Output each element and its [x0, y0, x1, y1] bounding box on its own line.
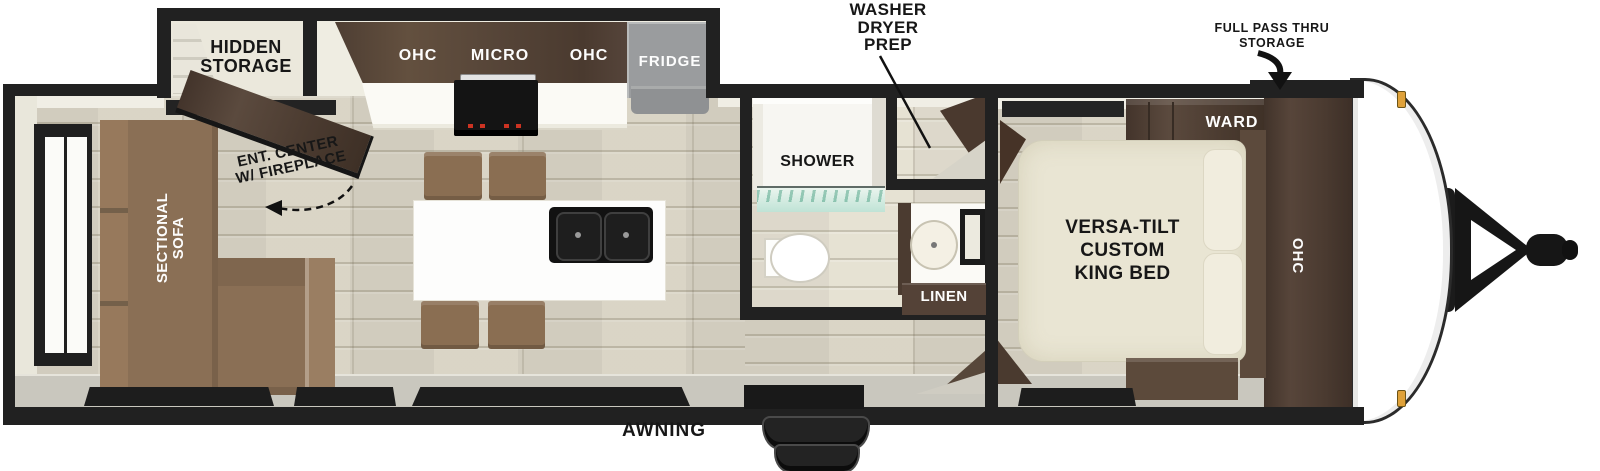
shower-label: SHOWER: [760, 153, 875, 170]
hitch-a-frame-icon: [1438, 178, 1600, 323]
bed-foot-bench: [1126, 358, 1238, 400]
stove-knob: [468, 124, 473, 128]
window-kitchen-bottom: [412, 387, 690, 406]
linen-label: LINEN: [902, 289, 986, 305]
wall-closet-bottom: [886, 179, 998, 190]
wall-top-mid: [706, 84, 1254, 98]
sectional-sofa-seat: [218, 258, 335, 395]
marker-light-bottom: [1397, 390, 1406, 407]
bath-sink-drain: [931, 242, 937, 248]
rear-window-pane: [45, 137, 64, 353]
washer-dryer-leader-line: [862, 50, 942, 155]
marker-light-top: [1397, 91, 1406, 108]
window-sofa-bottom: [294, 387, 396, 406]
wall-bath-left: [740, 87, 752, 319]
shower-glass-texture: [757, 190, 885, 202]
bedroom-ohc-label: OHC: [1289, 227, 1305, 285]
ward-label: WARD: [1192, 114, 1272, 131]
island-chair: [421, 301, 479, 349]
ent-center-swing-arrow-icon: [262, 182, 357, 222]
king-bed-label: VERSA-TILT CUSTOM KING BED: [1040, 216, 1205, 286]
window-rear-bottom: [84, 387, 274, 406]
toilet: [770, 233, 830, 283]
sectional-sofa-label: SECTIONAL SOFA: [155, 178, 191, 298]
bath-mirror: [960, 209, 985, 265]
sink-drain: [575, 232, 581, 238]
vanity-side-panel: [898, 203, 911, 295]
wall-slide-left: [157, 8, 171, 98]
bath-mirror-glass: [965, 215, 980, 259]
wall-top-rear: [3, 84, 165, 96]
rear-window: [34, 124, 92, 366]
bedroom-ohc-cabinet: [1264, 95, 1352, 407]
ohc-right-label: OHC: [561, 47, 617, 64]
rv-floorplan: SECTIONAL SOFA HIDDEN STORAGE ENT. CENTE…: [0, 0, 1600, 471]
fridge-label: FRIDGE: [628, 54, 712, 70]
sofa-back-cushions: [100, 120, 128, 395]
island-chair: [489, 152, 546, 200]
ohc-left-label: OHC: [390, 47, 446, 64]
wall-slide-top: [157, 8, 720, 21]
awning-label: AWNING: [594, 421, 734, 442]
full-pass-thru-label: FULL PASS THRU STORAGE: [1202, 21, 1342, 51]
fridge-door: [631, 86, 709, 114]
sink-bowl: [604, 212, 650, 261]
wall-rear: [3, 84, 15, 425]
shower-glass-door: [757, 186, 885, 212]
stove-knob: [516, 124, 521, 128]
washer-dryer-prep-label: WASHER DRYER PREP: [838, 1, 938, 54]
micro-label: MICRO: [458, 47, 542, 64]
bedroom-top-window-band: [1002, 101, 1124, 117]
sink-bowl: [556, 212, 602, 261]
stove-knob: [480, 124, 485, 128]
entry-door: [744, 385, 864, 409]
pass-thru-arrow-icon: [1250, 50, 1296, 92]
bed-pillow: [1203, 149, 1243, 251]
entry-step: [774, 444, 860, 471]
sink-drain: [623, 232, 629, 238]
island-chair: [424, 152, 482, 200]
hidden-storage-label: HIDDEN STORAGE: [181, 38, 311, 77]
trailer-nose-cap: [1350, 78, 1453, 424]
rear-window-pane: [67, 137, 87, 353]
island-chair: [488, 301, 545, 349]
bedroom-window: [1018, 388, 1136, 406]
island-sink: [549, 207, 653, 263]
sofa-armrest: [305, 258, 335, 395]
stove-knob: [504, 124, 509, 128]
bath-sink: [910, 220, 958, 270]
bed-pillow: [1203, 253, 1243, 355]
wall-bedroom-divider: [985, 87, 998, 408]
stove: [454, 80, 538, 136]
